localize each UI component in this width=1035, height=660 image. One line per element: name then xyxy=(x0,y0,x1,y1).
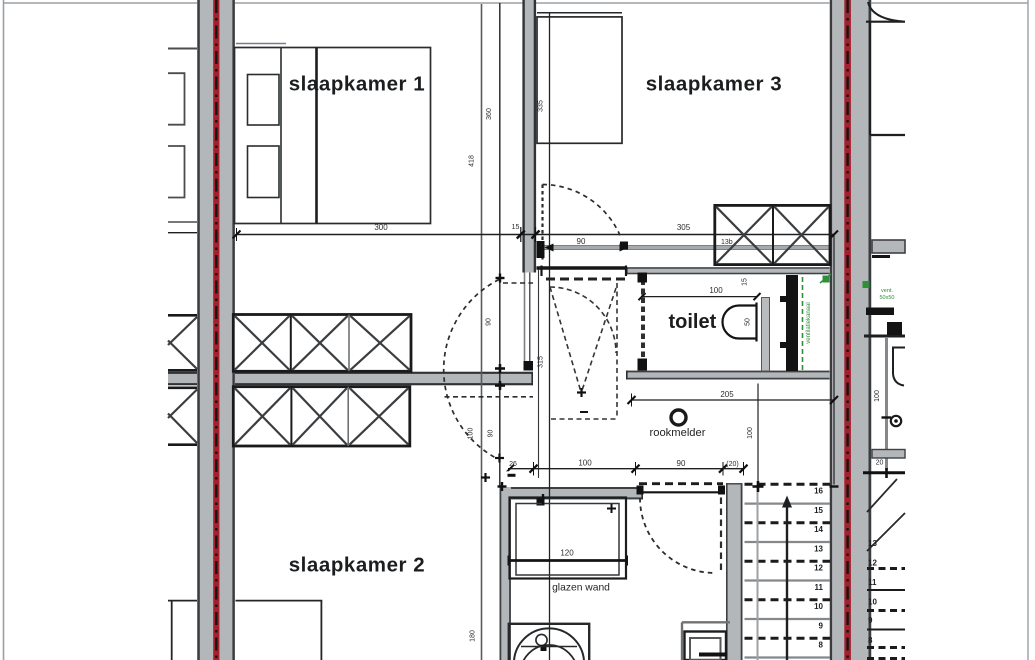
svg-text:305: 305 xyxy=(677,223,691,232)
svg-text:11: 11 xyxy=(868,578,877,587)
svg-text:26: 26 xyxy=(509,461,517,468)
svg-text:90: 90 xyxy=(486,318,493,326)
svg-text:15: 15 xyxy=(742,278,749,286)
svg-text:360: 360 xyxy=(486,108,493,120)
svg-text:10: 10 xyxy=(814,602,823,611)
svg-text:100: 100 xyxy=(747,427,754,439)
svg-text:100: 100 xyxy=(578,459,592,468)
svg-text:100: 100 xyxy=(468,428,475,440)
svg-text:9: 9 xyxy=(868,616,873,625)
svg-text:13: 13 xyxy=(814,544,823,553)
svg-text:205: 205 xyxy=(720,390,734,399)
svg-text:20: 20 xyxy=(876,460,884,467)
svg-text:10: 10 xyxy=(868,598,877,607)
svg-text:8: 8 xyxy=(819,641,824,650)
svg-text:12: 12 xyxy=(814,564,823,573)
svg-text:50x50: 50x50 xyxy=(880,295,895,301)
svg-text:13b: 13b xyxy=(721,239,733,246)
svg-text:slaapkamer 3: slaapkamer 3 xyxy=(646,73,783,96)
svg-text:120: 120 xyxy=(560,549,574,558)
svg-text:ventilatiekanaal: ventilatiekanaal xyxy=(806,302,812,343)
svg-text:100: 100 xyxy=(874,390,881,402)
svg-text:300: 300 xyxy=(374,223,388,232)
svg-text:50: 50 xyxy=(745,318,752,326)
svg-text:(20): (20) xyxy=(726,461,738,468)
svg-text:90: 90 xyxy=(577,237,586,246)
svg-text:9: 9 xyxy=(819,621,824,630)
svg-text:418: 418 xyxy=(469,155,476,167)
svg-text:12: 12 xyxy=(868,559,877,568)
svg-text:slaapkamer 1: slaapkamer 1 xyxy=(289,73,426,96)
svg-text:90: 90 xyxy=(677,459,686,468)
svg-text:16: 16 xyxy=(814,487,823,496)
svg-text:slaapkamer 2: slaapkamer 2 xyxy=(289,554,426,577)
svg-text:vent.: vent. xyxy=(881,288,893,294)
svg-text:335: 335 xyxy=(538,100,545,112)
svg-text:90: 90 xyxy=(488,430,495,438)
svg-text:13: 13 xyxy=(868,539,877,548)
svg-text:rookmelder: rookmelder xyxy=(650,427,706,439)
svg-text:180: 180 xyxy=(470,630,477,642)
svg-text:15: 15 xyxy=(814,506,823,515)
svg-text:100: 100 xyxy=(709,286,723,295)
svg-text:14: 14 xyxy=(814,525,823,534)
svg-text:glazen wand: glazen wand xyxy=(552,583,610,594)
svg-text:8: 8 xyxy=(868,636,873,645)
svg-text:315: 315 xyxy=(538,356,545,368)
svg-text:toilet: toilet xyxy=(669,311,717,333)
svg-text:15: 15 xyxy=(512,224,520,231)
svg-text:11: 11 xyxy=(815,583,824,592)
